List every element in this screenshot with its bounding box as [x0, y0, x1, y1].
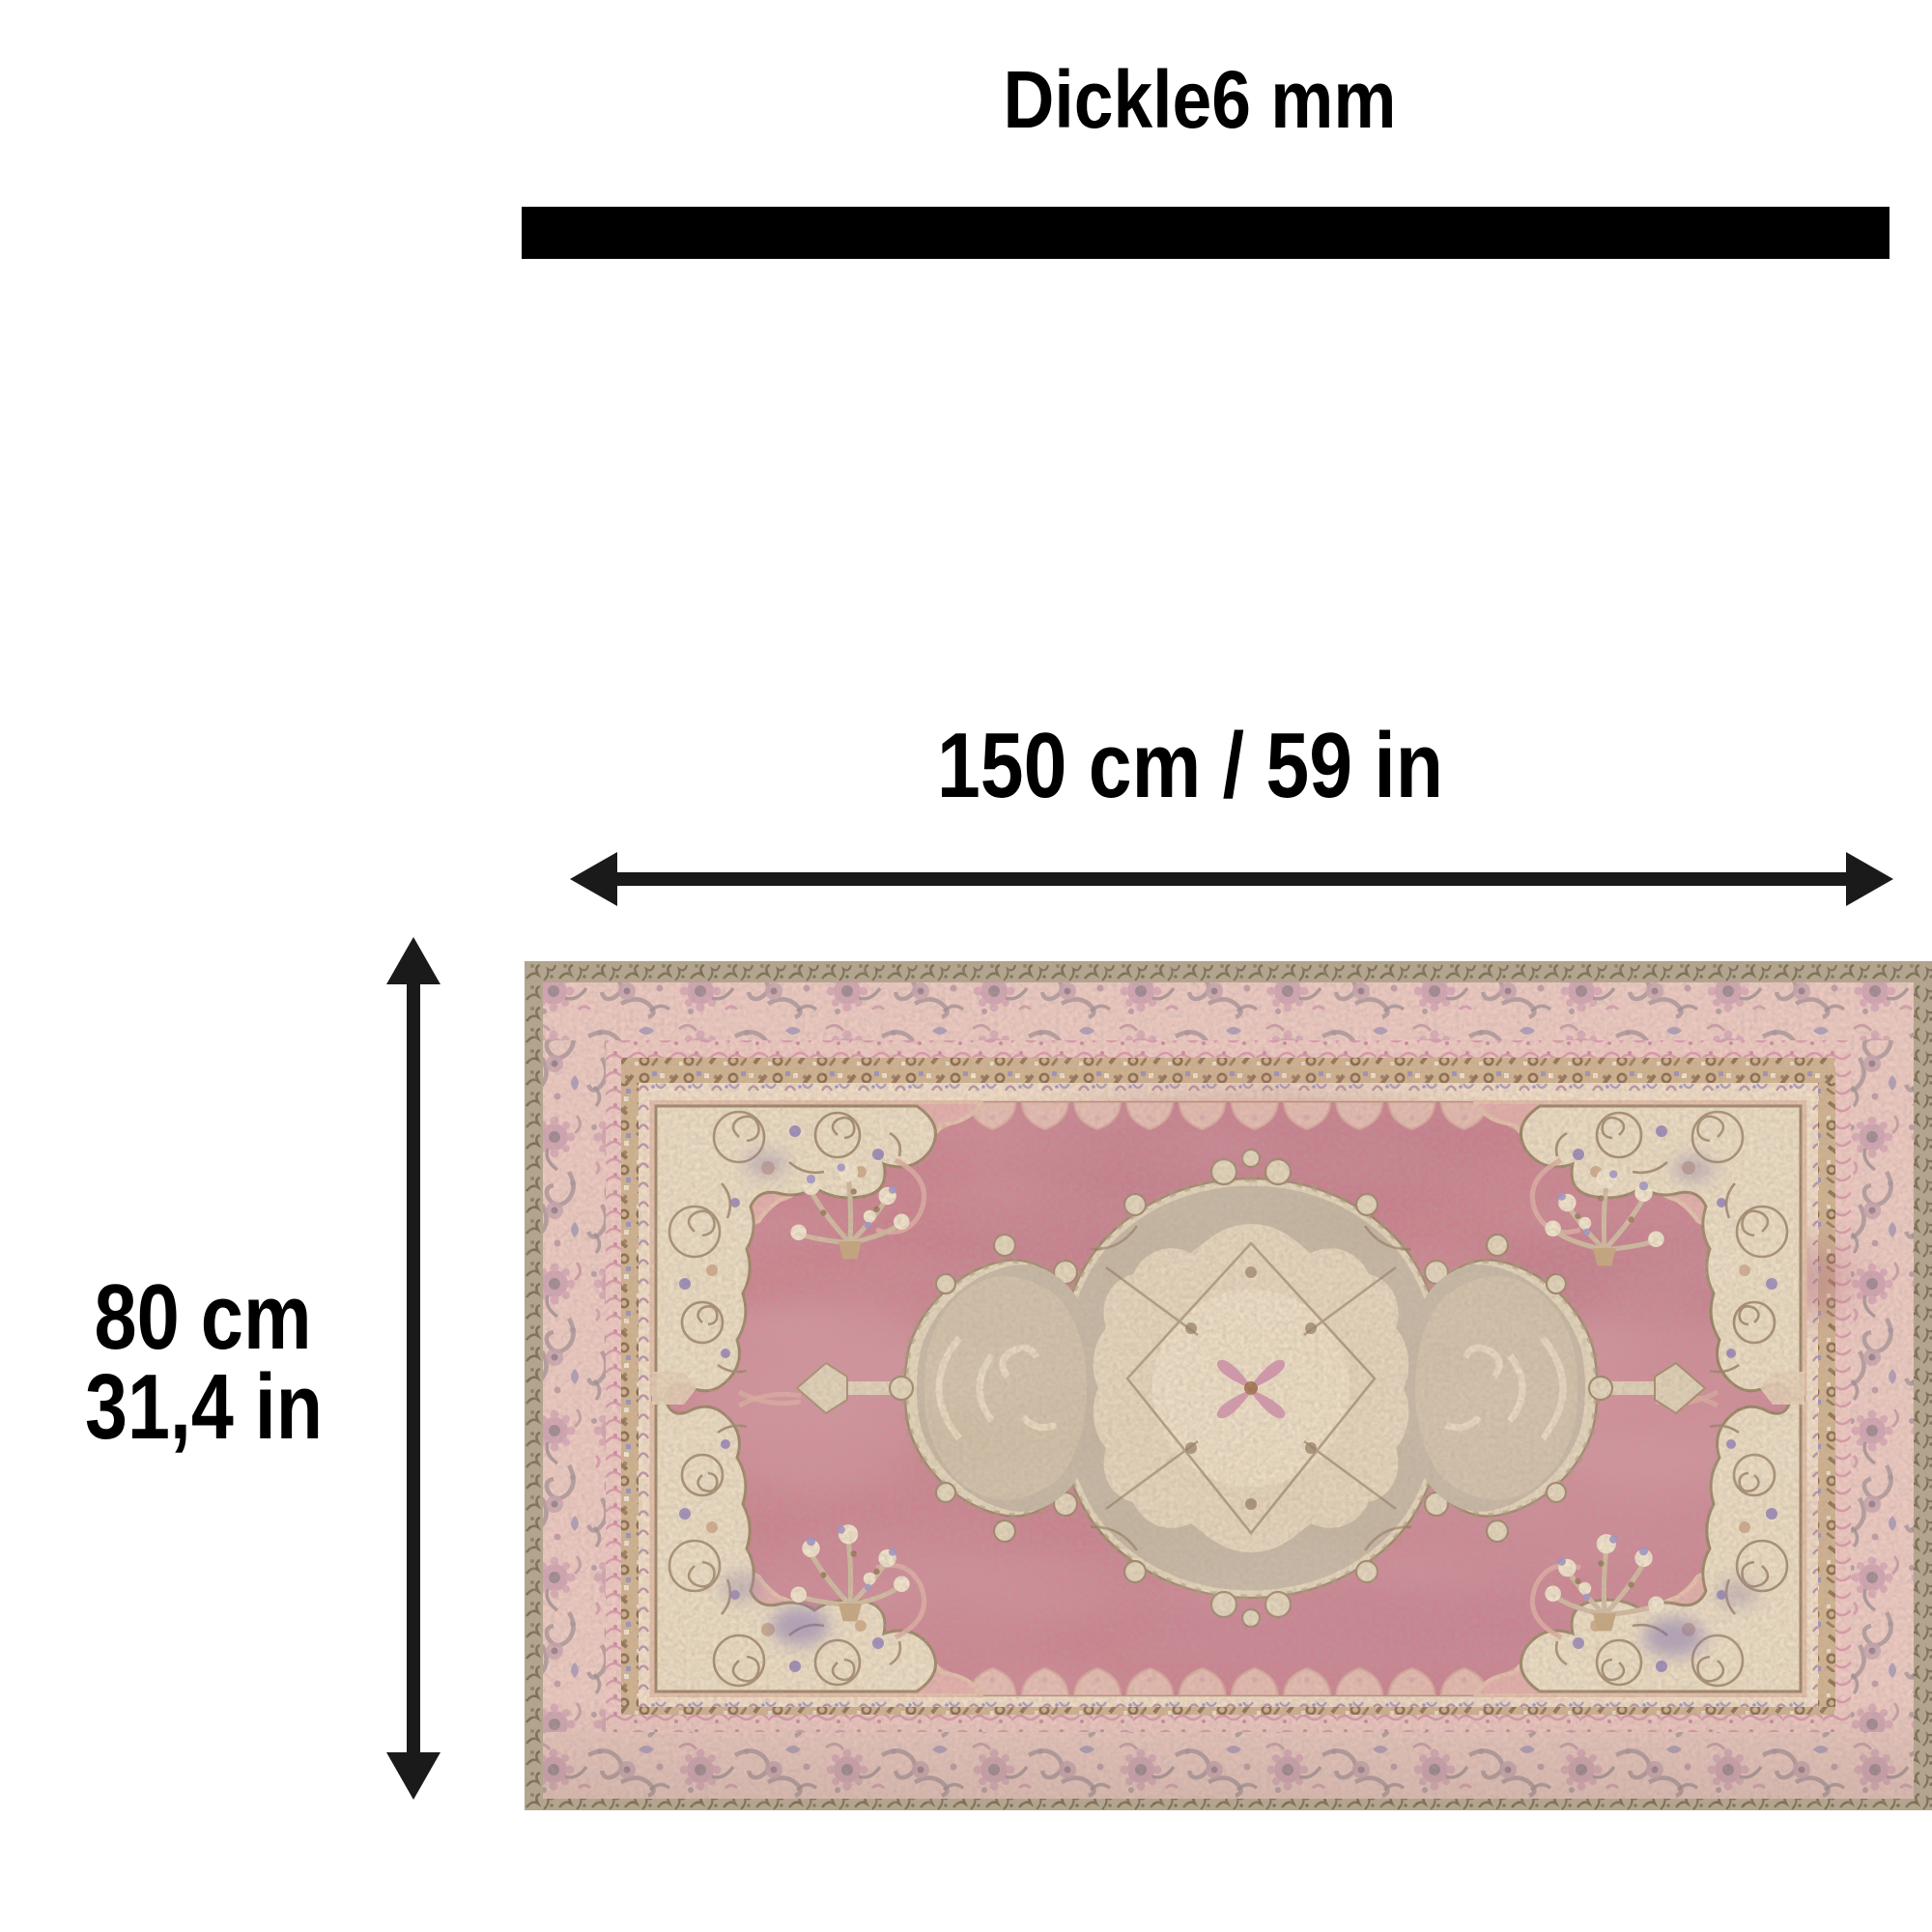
- svg-text:80 cm: 80 cm: [95, 1265, 312, 1369]
- svg-text:Dickle6 mm: Dickle6 mm: [1004, 54, 1397, 145]
- svg-text:31,4 in: 31,4 in: [85, 1355, 323, 1459]
- svg-text:150 cm / 59 in: 150 cm / 59 in: [937, 714, 1443, 817]
